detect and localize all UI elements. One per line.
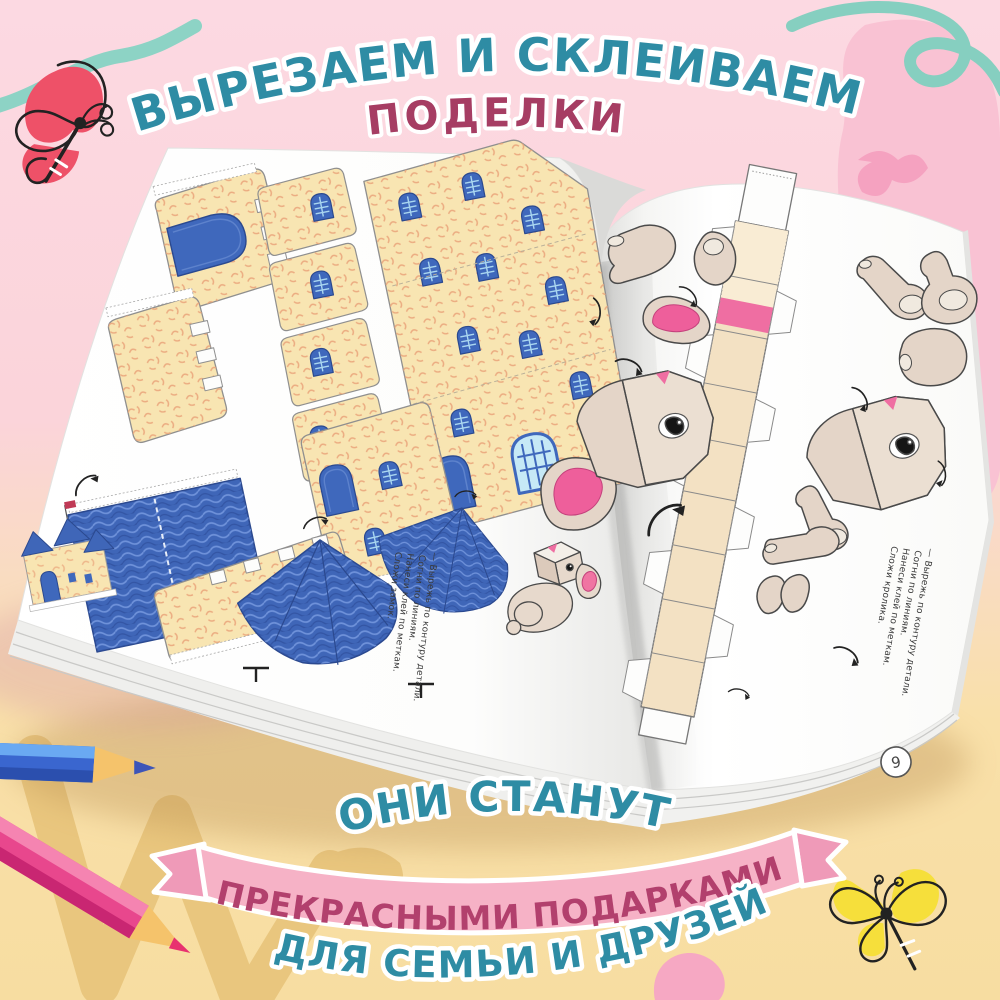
promo-image: — Вырежь по контуру детали. Согни по лин… [0,0,1000,1000]
scene: — Вырежь по контуру детали. Согни по лин… [0,0,1000,1000]
book: — Вырежь по контуру детали. Согни по лин… [0,128,994,850]
